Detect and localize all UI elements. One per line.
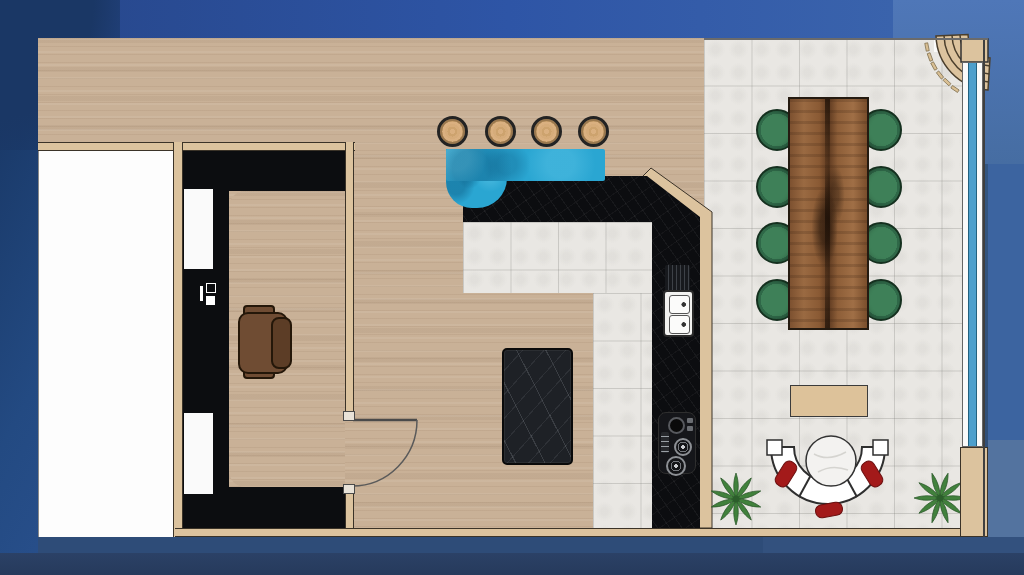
plan-right-edge — [983, 38, 985, 537]
burner-solid — [668, 417, 685, 434]
kitchen-sink — [663, 290, 694, 337]
sofa-armrest-right — [873, 440, 888, 455]
sink-basin-bottom — [669, 315, 690, 334]
burner-ring-1 — [674, 438, 692, 456]
marble-coffee-table — [806, 436, 856, 486]
plan-top-edge — [704, 38, 988, 40]
screenshot-stage — [0, 0, 1024, 575]
overlay-drawings — [0, 0, 1024, 575]
plant-left — [711, 473, 762, 525]
window-wall-right — [962, 62, 983, 447]
kitchen-faucet — [665, 265, 690, 291]
bar-counter — [446, 149, 605, 181]
bar-stool — [531, 116, 562, 147]
bar-stool — [437, 116, 468, 147]
window-glazing — [968, 63, 977, 446]
sofa-armrest-left — [767, 440, 782, 455]
door-jamb-lower — [343, 484, 355, 494]
cooktop-knobs — [661, 432, 669, 453]
wall-bottom — [175, 528, 962, 537]
curved-sofa — [767, 436, 888, 519]
cooktop — [658, 412, 696, 474]
bar-stool — [578, 116, 609, 147]
bar-stool — [485, 116, 516, 147]
burner-ring-2 — [666, 456, 686, 476]
cooktop-pad — [687, 426, 693, 431]
door-jamb-upper — [343, 411, 355, 421]
sink-basin-top — [669, 295, 690, 314]
cooktop-pad — [687, 418, 693, 423]
